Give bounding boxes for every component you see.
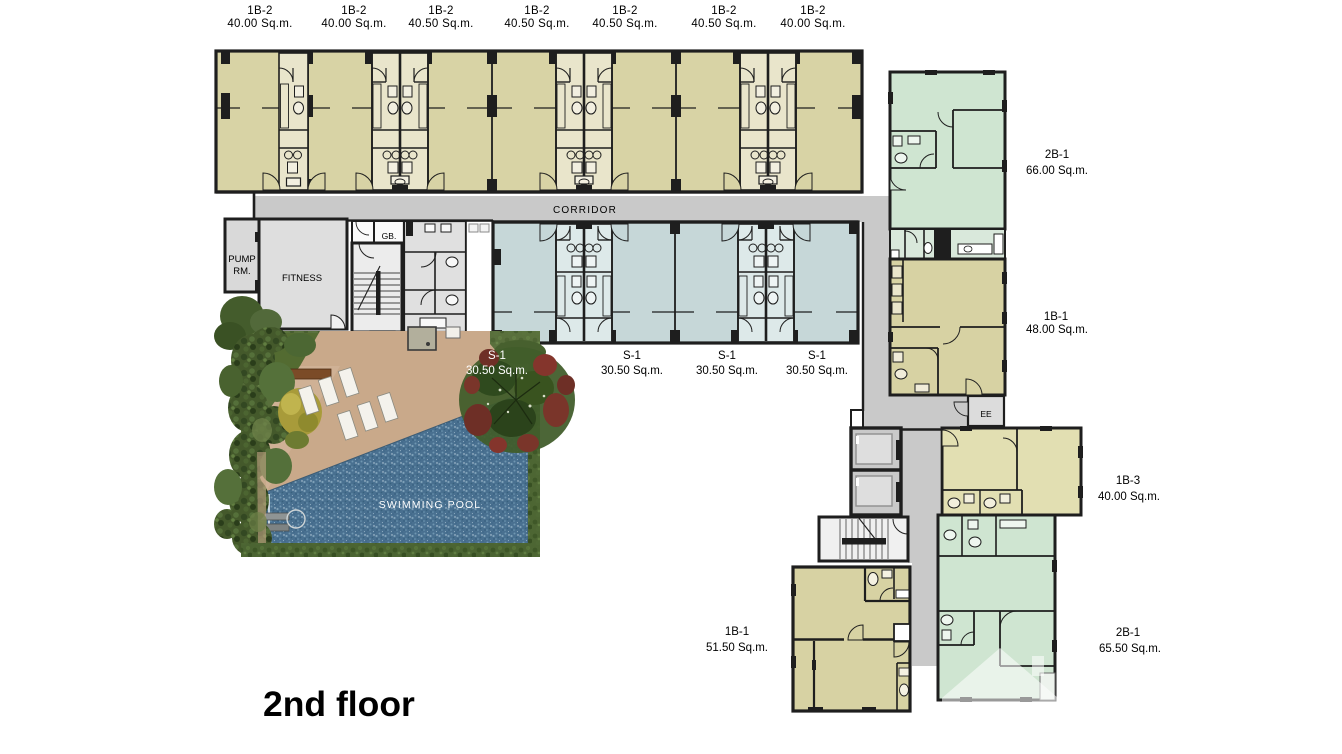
svg-text:40.00 Sq.m.: 40.00 Sq.m. [1098,491,1160,503]
svg-text:1B-1: 1B-1 [1044,311,1068,323]
svg-text:30.50 Sq.m.: 30.50 Sq.m. [696,365,758,377]
svg-text:2nd floor: 2nd floor [263,684,415,724]
svg-text:1B-2: 1B-2 [247,5,273,17]
svg-text:65.50 Sq.m.: 65.50 Sq.m. [1099,643,1161,655]
svg-text:EE: EE [980,409,992,419]
svg-text:PUMP: PUMP [228,254,255,265]
svg-text:S-1: S-1 [623,350,641,362]
svg-text:40.50 Sq.m.: 40.50 Sq.m. [408,18,473,30]
svg-text:S-1: S-1 [718,350,736,362]
svg-text:51.50 Sq.m.: 51.50 Sq.m. [706,642,768,654]
svg-text:S-1: S-1 [488,350,506,362]
svg-text:30.50 Sq.m.: 30.50 Sq.m. [601,365,663,377]
svg-text:2B-1: 2B-1 [1116,627,1140,639]
svg-text:1B-2: 1B-2 [341,5,367,17]
svg-text:1B-2: 1B-2 [428,5,454,17]
svg-text:40.50 Sq.m.: 40.50 Sq.m. [504,18,569,30]
svg-text:1B-2: 1B-2 [800,5,826,17]
svg-text:40.50 Sq.m.: 40.50 Sq.m. [592,18,657,30]
svg-text:FITNESS: FITNESS [282,273,322,284]
svg-text:30.50 Sq.m.: 30.50 Sq.m. [786,365,848,377]
svg-text:SWIMMING POOL: SWIMMING POOL [379,499,481,511]
svg-text:66.00 Sq.m.: 66.00 Sq.m. [1026,165,1088,177]
svg-text:1B-2: 1B-2 [612,5,638,17]
svg-text:40.00 Sq.m.: 40.00 Sq.m. [227,18,292,30]
svg-text:30.50 Sq.m.: 30.50 Sq.m. [466,365,528,377]
svg-text:40.00 Sq.m.: 40.00 Sq.m. [321,18,386,30]
svg-text:CORRIDOR: CORRIDOR [553,205,617,216]
svg-text:2B-1: 2B-1 [1045,149,1069,161]
svg-text:1B-2: 1B-2 [524,5,550,17]
svg-text:1B-3: 1B-3 [1116,475,1140,487]
svg-text:48.00 Sq.m.: 48.00 Sq.m. [1026,324,1088,336]
svg-text:RM.: RM. [233,266,250,277]
svg-text:40.00 Sq.m.: 40.00 Sq.m. [780,18,845,30]
svg-text:1B-2: 1B-2 [711,5,737,17]
svg-text:S-1: S-1 [808,350,826,362]
svg-text:40.50 Sq.m.: 40.50 Sq.m. [691,18,756,30]
svg-text:GB.: GB. [382,231,397,241]
svg-text:1B-1: 1B-1 [725,626,749,638]
